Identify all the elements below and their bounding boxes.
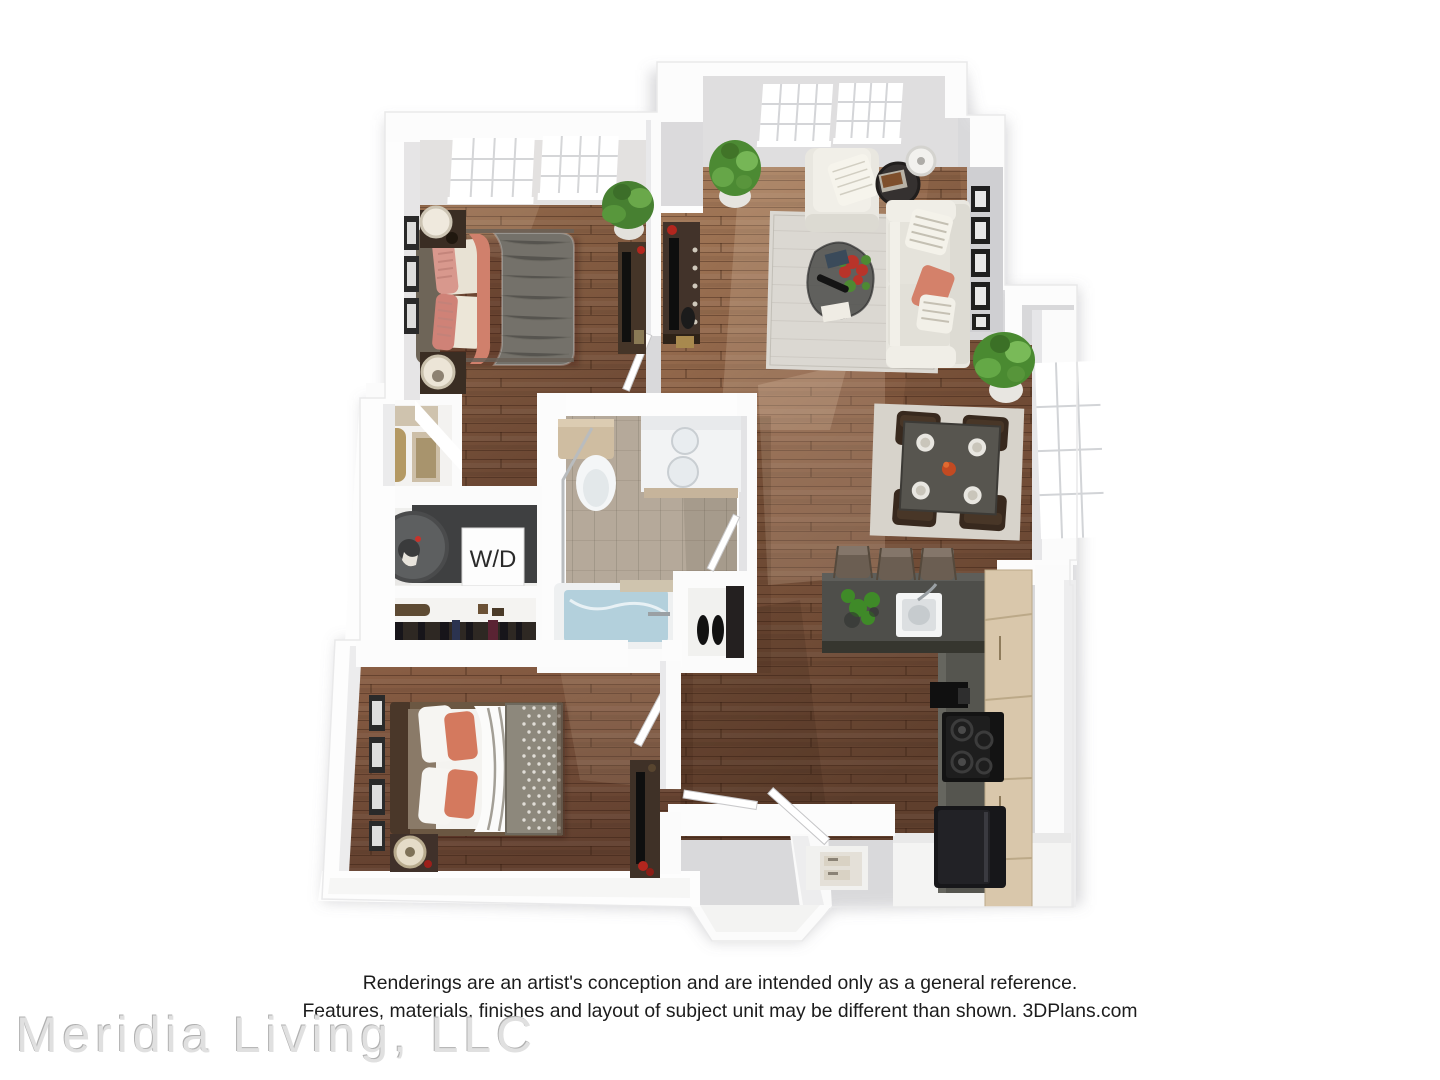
svg-text:Renderings are an artist's con: Renderings are an artist's conception an…: [363, 972, 1078, 994]
svg-text:W/D: W/D: [470, 546, 517, 573]
